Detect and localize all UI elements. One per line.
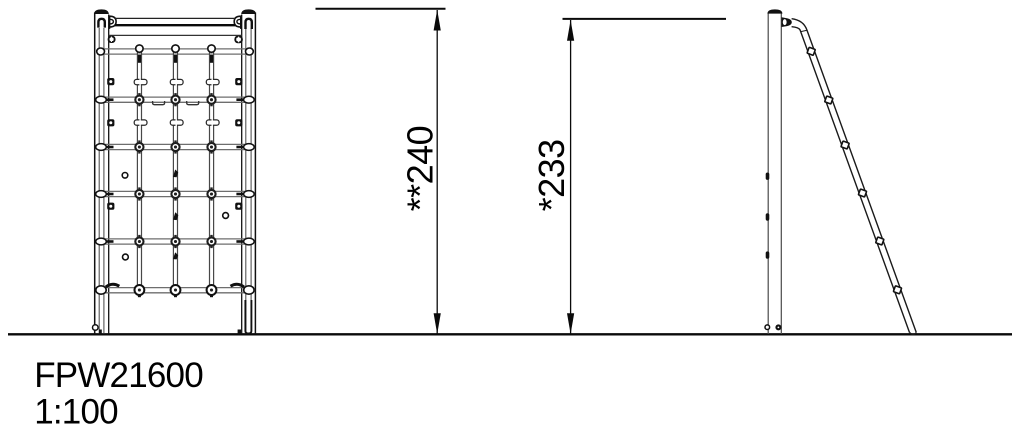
svg-text:*233: *233 [531,139,572,211]
svg-text:FPW21600: FPW21600 [34,356,203,395]
svg-text:1:100: 1:100 [34,392,118,431]
svg-text:**240: **240 [399,126,440,212]
